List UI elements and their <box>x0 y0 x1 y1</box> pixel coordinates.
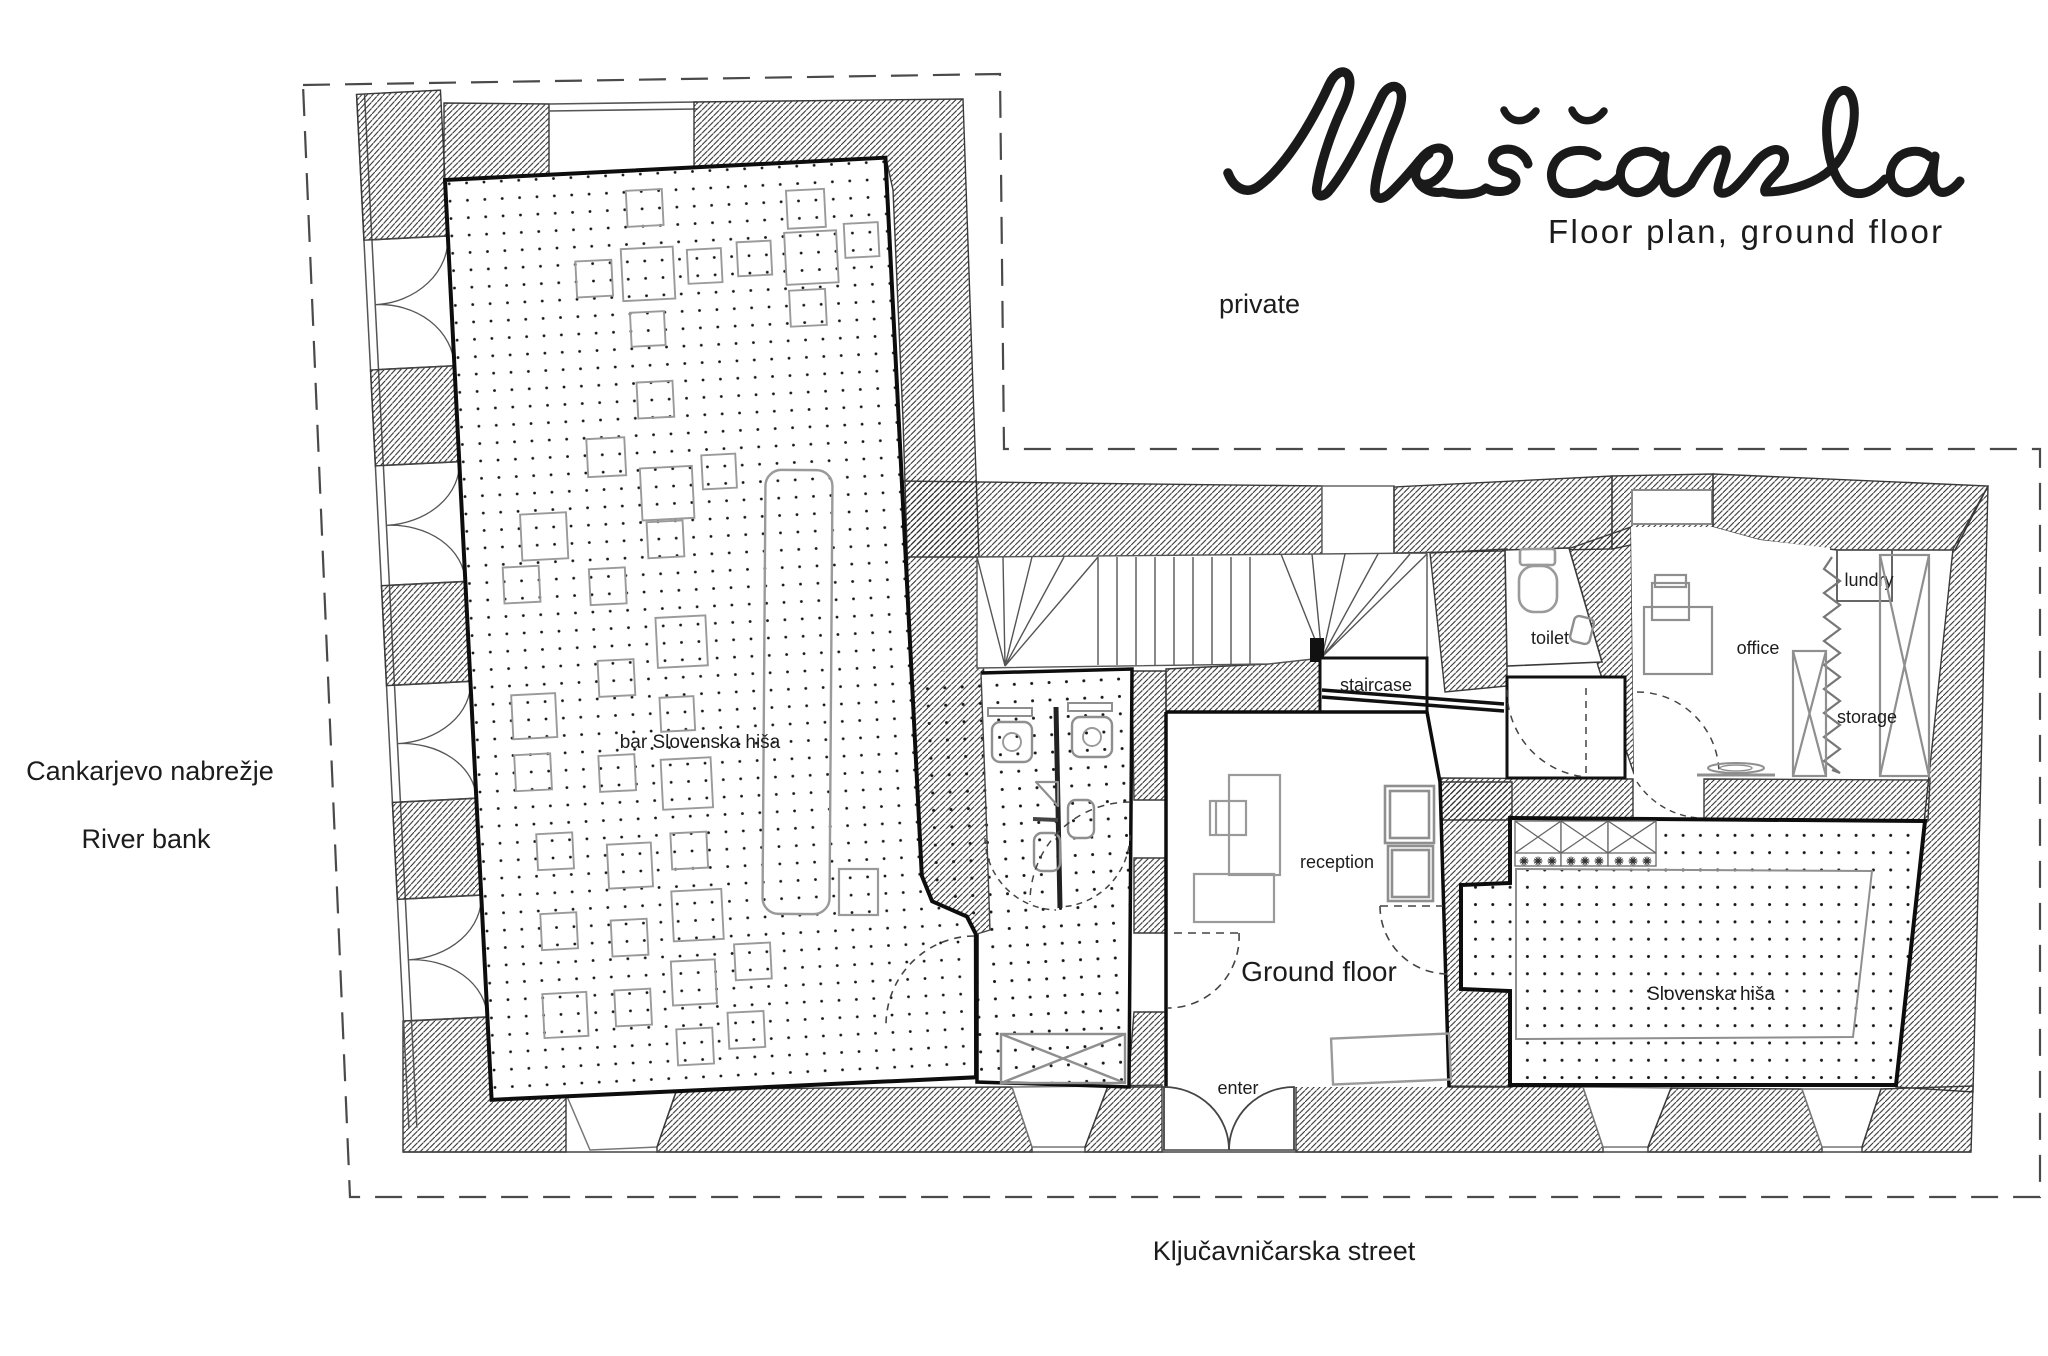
svg-text:Slovenska hiša: Slovenska hiša <box>1647 984 1775 1005</box>
svg-text:reception: reception <box>1300 852 1374 872</box>
svg-text:Cankarjevo nabrežje: Cankarjevo nabrežje <box>26 756 274 786</box>
svg-text:staircase: staircase <box>1340 675 1412 695</box>
svg-text:private: private <box>1219 289 1300 319</box>
svg-text:Ground floor: Ground floor <box>1241 956 1397 987</box>
svg-text:bar Slovenska hiša: bar Slovenska hiša <box>620 732 781 753</box>
svg-text:Ključavničarska street: Ključavničarska street <box>1153 1236 1416 1266</box>
svg-text:enter: enter <box>1217 1078 1258 1098</box>
svg-text:office: office <box>1737 638 1780 658</box>
svg-text:Floor plan, ground floor: Floor plan, ground floor <box>1548 213 1944 250</box>
svg-text:toilet: toilet <box>1531 628 1569 648</box>
svg-text:storage: storage <box>1837 707 1897 727</box>
svg-text:River bank: River bank <box>81 824 211 854</box>
